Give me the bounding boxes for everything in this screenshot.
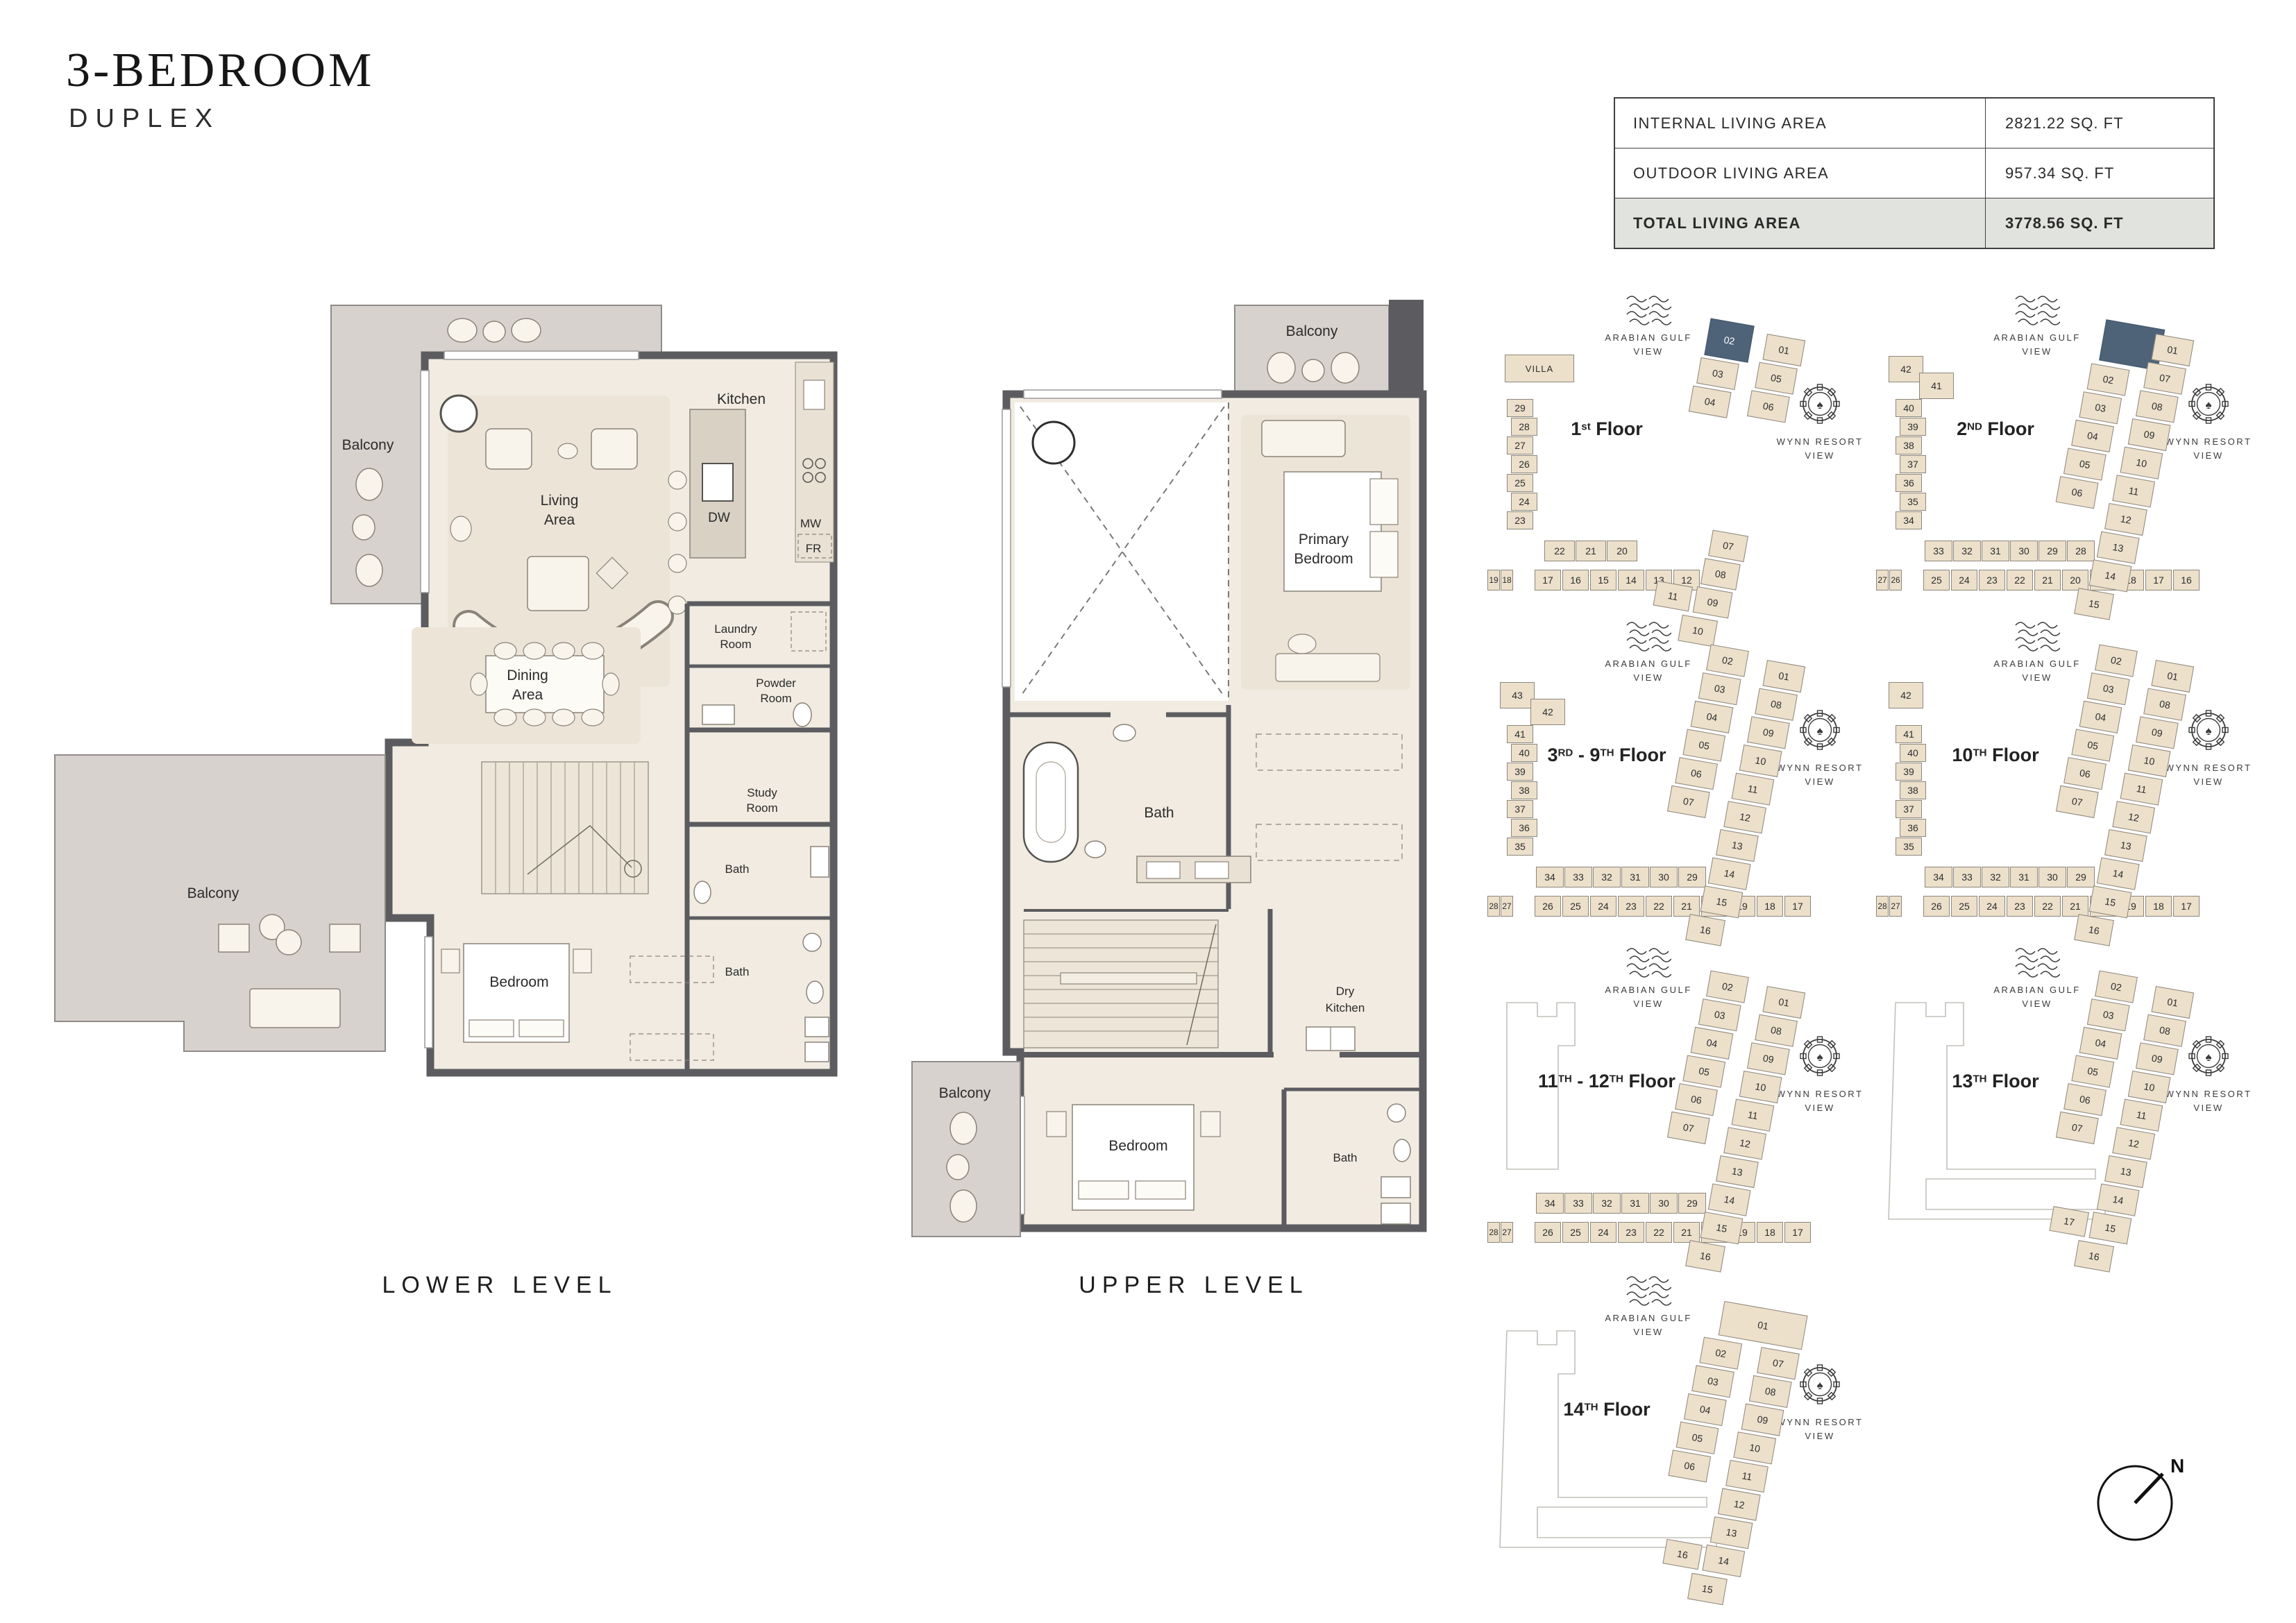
- dining-area: Dining Area: [412, 627, 641, 744]
- svg-text:♠: ♠: [1816, 1051, 1823, 1064]
- unit-cell: 22: [1646, 896, 1672, 917]
- unit-cell: 16: [1685, 914, 1725, 946]
- keyplan-title: 10TH Floor: [1898, 745, 2093, 766]
- unit-cell: 02: [2087, 363, 2130, 396]
- window: [1002, 409, 1011, 687]
- laundry-label: Laundry: [714, 622, 757, 636]
- arabian-gulf-view-label: ARABIAN GULF: [1993, 332, 2080, 343]
- unit-cell: 16: [2074, 914, 2114, 946]
- unit-cell: 09: [2136, 716, 2179, 749]
- window: [444, 351, 639, 359]
- balcony-label: Balcony: [342, 437, 394, 453]
- keyplan-title: 3RD - 9TH Floor: [1510, 745, 1704, 766]
- keyplan-13th-floor: ARABIAN GULFVIEW ♠WYNN RESORTVIEW13TH Fl…: [1871, 947, 2256, 1270]
- unit-cell: 25: [1923, 570, 1950, 590]
- svg-text:Room: Room: [760, 692, 791, 705]
- unit-cell: 30: [2038, 867, 2066, 887]
- unit-cell: 34: [1536, 867, 1564, 887]
- wynn-icon-wrap: ♠: [1800, 384, 1840, 427]
- bedroom-label: Bedroom: [1108, 1138, 1167, 1154]
- unit-cell: 14: [2097, 858, 2140, 890]
- wynn-icon-wrap: ♠: [2188, 384, 2229, 427]
- table-row: OUTDOOR LIVING AREA 957.34 SQ. FT: [1615, 148, 2213, 198]
- unit-cell: 09: [1693, 586, 1733, 618]
- wynn-resort-view-label: VIEW: [1805, 1431, 1834, 1441]
- unit-cell: 24: [1979, 896, 2005, 917]
- unit-cell: 34: [1925, 867, 1952, 887]
- waves-icon-wrap: [1626, 295, 1671, 330]
- unit-cell: 38: [1896, 436, 1922, 454]
- unit-cell: 12: [2104, 503, 2147, 536]
- unit-cell: 20: [1607, 541, 1637, 561]
- wynn-resort-view-label: VIEW: [1805, 450, 1834, 461]
- microwave-label: MW: [800, 517, 821, 530]
- svg-text:Bedroom: Bedroom: [1294, 551, 1353, 567]
- unit-cell: 14: [1618, 570, 1644, 590]
- unit-cell: 15: [1687, 1573, 1728, 1605]
- unit-cell: 29: [2067, 867, 2095, 887]
- keyplan-10th-floor: ARABIAN GULFVIEW ♠WYNN RESORTVIEW10TH Fl…: [1871, 621, 2256, 944]
- double-height-void: [1015, 402, 1229, 701]
- svg-text:♠: ♠: [1816, 1379, 1823, 1392]
- unit-cell: 18: [1757, 1222, 1783, 1243]
- bath-label: Bath: [1144, 805, 1174, 821]
- living-area-label: Living: [541, 493, 579, 509]
- wynn-resort-view-label: WYNN RESORT: [2166, 763, 2252, 773]
- upper-level-plan: Balcony Primary Bedroom: [895, 298, 1478, 1270]
- lower-balcony-bottom: Balcony: [55, 755, 385, 1051]
- unit-cell: 21: [2034, 570, 2061, 590]
- unit-cell: 22: [1544, 541, 1575, 561]
- unit-cell: 08: [1749, 1375, 1792, 1408]
- unit-cell: 24: [1590, 896, 1617, 917]
- unit-cell: 17: [1535, 570, 1561, 590]
- arabian-gulf-view-label: VIEW: [2022, 346, 2052, 357]
- unit-cell: 29: [1678, 867, 1706, 887]
- wynn-resort-view-label: WYNN RESORT: [2166, 1089, 2252, 1099]
- unit-cell: 10: [2128, 1071, 2171, 1103]
- svg-text:♠: ♠: [1816, 398, 1823, 411]
- unit-cell: 27: [1889, 896, 1902, 917]
- unit-cell: 14: [1708, 858, 1751, 890]
- unit-cell: 23: [1507, 511, 1533, 529]
- row-value: 3778.56 SQ. FT: [1985, 198, 2213, 248]
- unit-cell: 13: [1716, 829, 1759, 862]
- unit-cell: 04: [2071, 420, 2114, 452]
- unit-cell: 19: [1487, 570, 1500, 590]
- unit-cell: 35: [1896, 838, 1922, 856]
- unit-cell: 21: [1673, 1222, 1700, 1243]
- svg-text:Area: Area: [512, 687, 543, 703]
- row-label: OUTDOOR LIVING AREA: [1615, 148, 1985, 198]
- unit-cell: 11: [1653, 581, 1693, 611]
- unit-cell: 25: [1951, 896, 1977, 917]
- unit-cell: 01: [2151, 660, 2194, 692]
- unit-cell: 30: [1650, 1193, 1678, 1214]
- unit-cell: 08: [1755, 1014, 1798, 1047]
- stairs: [1024, 920, 1218, 1048]
- unit-cell: 36: [1896, 474, 1922, 492]
- unit-cell: 28: [2067, 541, 2095, 561]
- unit-cell: 27: [1876, 570, 1889, 590]
- unit-cell: 23: [1979, 570, 2005, 590]
- unit-cell: 09: [1747, 1042, 1790, 1075]
- unit-cell: 22: [1646, 1222, 1672, 1243]
- unit-cell: 29: [2038, 541, 2066, 561]
- unit-cluster: 020304050601070809101112131415: [2086, 316, 2222, 340]
- row-label: INTERNAL LIVING AREA: [1615, 99, 1985, 148]
- unit-cell: 39: [1896, 763, 1922, 781]
- waves-icon: [1626, 621, 1671, 653]
- unit-cell: 26: [1923, 896, 1950, 917]
- unit-cell: 34: [1536, 1193, 1564, 1214]
- upper-balcony-top: Balcony: [1235, 300, 1424, 404]
- primary-bedroom-label: Primary: [1299, 532, 1349, 547]
- unit-cell: 28: [1511, 418, 1537, 436]
- window: [1024, 390, 1222, 398]
- unit-cell: VILLA: [1505, 355, 1574, 382]
- unit-cell: 23: [2007, 896, 2033, 917]
- unit-cell: 29: [1678, 1193, 1706, 1214]
- unit-cell: 03: [1698, 672, 1741, 705]
- svg-text:♠: ♠: [2205, 398, 2211, 411]
- row-value: 957.34 SQ. FT: [1985, 148, 2213, 198]
- unit-cell: 07: [1708, 530, 1748, 562]
- svg-text:♠: ♠: [2205, 1051, 2211, 1064]
- unit-cell: 28: [1487, 1222, 1500, 1243]
- unit-cell: 08: [1700, 558, 1741, 590]
- unit-cell: 39: [1900, 418, 1926, 436]
- north-label: N: [2170, 1455, 2184, 1477]
- unit-cell: 26: [1889, 570, 1902, 590]
- unit-cell: 31: [1621, 1193, 1649, 1214]
- unit-cell: 10: [2120, 447, 2163, 479]
- unit-cell: 10: [2128, 745, 2171, 777]
- waves-icon-wrap: [2014, 295, 2060, 330]
- unit-cell: 36: [1900, 819, 1926, 837]
- primary-bedroom: Primary Bedroom: [1241, 415, 1410, 690]
- lower-level-caption: LOWER LEVEL: [118, 1272, 881, 1299]
- bedroom: Bedroom: [1047, 1105, 1220, 1210]
- unit-cell: 01: [2151, 986, 2194, 1019]
- unit-cluster: 02030405060701080910111213141516: [1697, 642, 1834, 666]
- unit-cell: 11: [2112, 475, 2155, 507]
- bedroom-label: Bedroom: [489, 974, 548, 990]
- unit-cell: 31: [1621, 867, 1649, 887]
- unit-cell: 41: [1919, 373, 1954, 399]
- unit-cell: 08: [2136, 390, 2179, 423]
- svg-text:Room: Room: [746, 801, 777, 815]
- upper-level-caption: UPPER LEVEL: [923, 1272, 1464, 1299]
- wynn-resort-icon: ♠: [1800, 384, 1840, 424]
- unit-cell: 22: [2034, 896, 2061, 917]
- unit-cell: 27: [1501, 896, 1513, 917]
- dining-area-label: Dining: [507, 668, 548, 683]
- unit-cell: 37: [1900, 455, 1926, 473]
- unit-cell: 13: [2104, 829, 2147, 862]
- bath-label: Bath: [725, 863, 750, 876]
- unit-cell: 38: [1900, 781, 1926, 799]
- unit-cell: 24: [1511, 493, 1537, 511]
- unit-cell: 08: [1755, 688, 1798, 721]
- unit-cell: 22: [2007, 570, 2033, 590]
- table-row-total: TOTAL LIVING AREA 3778.56 SQ. FT: [1615, 198, 2213, 248]
- wynn-icon-wrap: ♠: [2188, 1036, 2229, 1080]
- wynn-resort-view-label: VIEW: [2193, 1103, 2223, 1113]
- unit-cell: 34: [1896, 511, 1922, 529]
- unit-cell: 06: [1675, 757, 1718, 790]
- arabian-gulf-view-label: ARABIAN GULF: [1605, 332, 1691, 343]
- unit-cell: 11: [1732, 773, 1775, 806]
- row-value: 2821.22 SQ. FT: [1985, 99, 2213, 148]
- svg-text:♠: ♠: [2205, 724, 2211, 738]
- unit-cell: 21: [2062, 896, 2088, 917]
- arabian-gulf-view-label: ARABIAN GULF: [1605, 658, 1691, 669]
- wynn-resort-view-label: WYNN RESORT: [1777, 1089, 1864, 1099]
- unit-cell: 07: [2143, 362, 2186, 395]
- wynn-icon-wrap: ♠: [1800, 710, 1840, 754]
- unit-cell: 11: [1725, 1460, 1769, 1493]
- wynn-icon-wrap: ♠: [2188, 710, 2229, 754]
- unit-cell: 06: [2056, 476, 2099, 509]
- unit-cell: 32: [1593, 867, 1621, 887]
- keyplan-2nd-floor: ARABIAN GULFVIEW ♠WYNN RESORTVIEW2ND Flo…: [1871, 295, 2256, 618]
- unit-cell: 16: [2074, 1240, 2114, 1272]
- unit-cell: 07: [1667, 785, 1710, 818]
- bath-label: Bath: [1333, 1151, 1358, 1164]
- kitchen-label: Kitchen: [717, 391, 766, 407]
- unit-cell: 02: [1706, 644, 1749, 677]
- unit-cell: 10: [1739, 745, 1782, 777]
- unit-cell: 07: [1757, 1347, 1800, 1379]
- unit-cell: 42: [1889, 682, 1923, 708]
- unit-cell: 12: [2112, 801, 2155, 833]
- unit-cell: 36: [1511, 819, 1537, 837]
- unit-cell: 31: [1982, 541, 2009, 561]
- unit-cell: 41: [1507, 725, 1533, 743]
- unit-cell: 08: [2143, 1014, 2186, 1047]
- unit-cell: 11: [2120, 773, 2163, 806]
- unit-cell: 10: [1739, 1071, 1782, 1103]
- unit-cell: 28: [1876, 896, 1889, 917]
- wynn-resort-icon: ♠: [1800, 1364, 1840, 1404]
- unit-cell: 30: [2010, 541, 2038, 561]
- unit-cell: 35: [1507, 838, 1533, 856]
- unit-cell: 31: [2010, 867, 2038, 887]
- row-label: TOTAL LIVING AREA: [1615, 198, 1985, 248]
- unit-cluster: 02030405060701080910111213141516: [1697, 968, 1834, 992]
- unit-cell: 16: [1562, 570, 1589, 590]
- unit-cell: 01: [1762, 660, 1805, 692]
- unit-cell: 18: [1757, 896, 1783, 917]
- fridge-label: FR: [806, 542, 822, 555]
- unit-cell: 39: [1507, 763, 1533, 781]
- svg-text:♠: ♠: [1816, 724, 1823, 738]
- unit-cell: 24: [1951, 570, 1977, 590]
- unit-cell: 43: [1500, 682, 1535, 708]
- waves-icon: [1626, 295, 1671, 327]
- unit-cell: 33: [1953, 867, 1981, 887]
- unit-cell: 35: [1900, 493, 1926, 511]
- wynn-resort-icon: ♠: [2188, 384, 2229, 424]
- unit-cell-highlighted: 02: [1704, 318, 1754, 362]
- page-subtitle: DUPLEX: [69, 104, 220, 134]
- unit-cell: 28: [1487, 896, 1500, 917]
- wynn-resort-view-label: VIEW: [2193, 450, 2223, 461]
- svg-text:Kitchen: Kitchen: [1326, 1001, 1365, 1014]
- study-label: Study: [747, 786, 777, 799]
- stairs: [482, 762, 648, 894]
- unit-cell: 27: [1507, 436, 1533, 454]
- unit-cell: 38: [1511, 781, 1537, 799]
- wynn-icon-wrap: ♠: [1800, 1036, 1840, 1080]
- unit-cell: 25: [1562, 1222, 1589, 1243]
- unit-cell: 32: [1982, 867, 2009, 887]
- unit-cell: 30: [1650, 867, 1678, 887]
- unit-cell: 05: [1755, 362, 1798, 395]
- unit-cell: 15: [1590, 570, 1617, 590]
- unit-cell: 05: [2063, 448, 2107, 480]
- unit-cell: 25: [1562, 896, 1589, 917]
- unit-cell: 27: [1501, 1222, 1513, 1243]
- unit-cell: 09: [2128, 418, 2171, 451]
- wynn-icon-wrap: ♠: [1800, 1364, 1840, 1408]
- unit-cluster: 0203040506070108091011121314151716: [2086, 968, 2222, 992]
- unit-cell: 37: [1896, 800, 1922, 818]
- waves-icon-wrap: [1626, 621, 1671, 656]
- upper-balcony-left: Balcony: [912, 1062, 1020, 1237]
- unit-cell: 21: [1576, 541, 1606, 561]
- unit-cell: 18: [1501, 570, 1513, 590]
- unit-cell: 03: [1696, 357, 1739, 390]
- unit-cell: 07: [2056, 785, 2099, 818]
- window: [421, 371, 429, 593]
- unit-cell: 42: [1530, 699, 1565, 725]
- unit-cell: 09: [2136, 1042, 2179, 1075]
- wynn-resort-icon: ♠: [2188, 1036, 2229, 1076]
- unit-cell: 06: [1747, 390, 1790, 423]
- window: [425, 937, 432, 1048]
- unit-cell: 29: [1507, 399, 1533, 417]
- unit-cell: 41: [1896, 725, 1922, 743]
- unit-cell: 04: [2079, 701, 2122, 733]
- svg-text:Room: Room: [720, 638, 751, 651]
- unit-cell: 26: [1535, 1222, 1561, 1243]
- wynn-resort-view-label: WYNN RESORT: [1777, 763, 1864, 773]
- unit-cell: 03: [2087, 672, 2130, 705]
- unit-cell: 25: [1507, 474, 1533, 492]
- waves-icon-wrap: [2014, 621, 2060, 656]
- wynn-resort-icon: ♠: [1800, 710, 1840, 750]
- unit-cluster: 02030405060701080910111213141516: [2086, 642, 2222, 666]
- unit-cell: 17: [1784, 1222, 1811, 1243]
- unit-cell: 06: [2063, 757, 2107, 790]
- wynn-resort-view-label: VIEW: [2193, 776, 2223, 787]
- balcony-label: Balcony: [187, 885, 239, 901]
- page-title: 3-BEDROOM: [66, 43, 374, 99]
- unit-cell: 32: [1953, 541, 1981, 561]
- unit-cell: 23: [1618, 896, 1644, 917]
- unit-cell: 42: [1889, 356, 1923, 382]
- keyplan-title: 1st Floor: [1510, 418, 1704, 440]
- powder-label: Powder: [756, 677, 796, 690]
- unit-cell: 04: [1689, 386, 1732, 418]
- bath-label: Bath: [725, 965, 750, 978]
- unit-cell: 40: [1896, 399, 1922, 417]
- table-row: INTERNAL LIVING AREA 2821.22 SQ. FT: [1615, 99, 2213, 148]
- unit-cell: 15: [2074, 588, 2114, 620]
- arabian-gulf-view-label: VIEW: [1633, 672, 1663, 683]
- balcony-label: Balcony: [1286, 323, 1338, 339]
- balcony-label: Balcony: [939, 1085, 991, 1101]
- unit-cell: 20: [2062, 570, 2088, 590]
- wynn-resort-icon: ♠: [2188, 710, 2229, 750]
- unit-cell: 40: [1511, 744, 1537, 762]
- unit-cell: 02: [2095, 644, 2138, 677]
- waves-icon: [2014, 621, 2060, 653]
- unit-cell: 04: [1691, 701, 1734, 733]
- unit-cell: 17: [2145, 570, 2172, 590]
- unit-cell: 33: [1564, 867, 1592, 887]
- unit-cell: 24: [1590, 1222, 1617, 1243]
- unit-cell: 26: [1535, 896, 1561, 917]
- wynn-resort-view-label: WYNN RESORT: [1777, 1417, 1864, 1427]
- wynn-resort-icon: ♠: [1800, 1036, 1840, 1076]
- unit-cell: 37: [1507, 800, 1533, 818]
- arabian-gulf-view-label: VIEW: [2022, 672, 2052, 683]
- unit-cell: 26: [1511, 455, 1537, 473]
- unit-cell: 33: [1925, 541, 1952, 561]
- unit-cell: 40: [1900, 744, 1926, 762]
- wynn-resort-view-label: VIEW: [1805, 776, 1834, 787]
- unit-cell: 16: [1685, 1240, 1725, 1272]
- unit-cell: 01: [1762, 334, 1805, 366]
- arabian-gulf-view-label: ARABIAN GULF: [1993, 658, 2080, 669]
- keyplan-1st-floor: ARABIAN GULFVIEW ♠WYNN RESORTVIEW1st Flo…: [1482, 295, 1867, 618]
- keyplan-title: 2ND Floor: [1898, 418, 2093, 440]
- unit-cell: 10: [1733, 1431, 1776, 1464]
- dishwasher-label: DW: [708, 511, 730, 525]
- unit-cell: 18: [2145, 896, 2172, 917]
- unit-cell: 11: [2120, 1099, 2163, 1132]
- keyplan-3rd-9th-floor: ARABIAN GULFVIEW ♠WYNN RESORTVIEW3RD - 9…: [1482, 621, 1867, 944]
- unit-cell: 21: [1673, 896, 1700, 917]
- unit-cell: 16: [2173, 570, 2200, 590]
- dry-kitchen-label: Dry: [1336, 985, 1355, 998]
- area-table: INTERNAL LIVING AREA 2821.22 SQ. FT OUTD…: [1614, 97, 2215, 249]
- keyplan-14th-floor: ARABIAN GULFVIEW ♠WYNN RESORTVIEW14TH Fl…: [1482, 1275, 1867, 1598]
- wynn-resort-view-label: VIEW: [1805, 1103, 1834, 1113]
- unit-cluster: 0203040105060708091110: [1697, 316, 1834, 340]
- unit-cell: 32: [1593, 1193, 1621, 1214]
- unit-cell: 17: [1784, 896, 1811, 917]
- lower-level-plan: Balcony Living Area Kitchen DW: [42, 298, 847, 1270]
- unit-cell: 11: [1732, 1099, 1775, 1132]
- unit-cell: 01: [1762, 986, 1805, 1019]
- waves-icon: [2014, 295, 2060, 327]
- unit-cell: 13: [2097, 532, 2140, 564]
- wynn-resort-view-label: WYNN RESORT: [2166, 436, 2252, 447]
- svg-text:Area: Area: [544, 512, 575, 528]
- unit-cell: 17: [2173, 896, 2200, 917]
- unit-cell: 09: [1747, 716, 1790, 749]
- unit-cell: 12: [1723, 801, 1766, 833]
- north-compass: N: [2082, 1443, 2200, 1561]
- unit-cell: 08: [2143, 688, 2186, 721]
- keyplan-11th-12th-floor: ARABIAN GULFVIEW ♠WYNN RESORTVIEW11TH - …: [1482, 947, 1867, 1270]
- arabian-gulf-view-label: VIEW: [1633, 346, 1663, 357]
- unit-cell: 33: [1564, 1193, 1592, 1214]
